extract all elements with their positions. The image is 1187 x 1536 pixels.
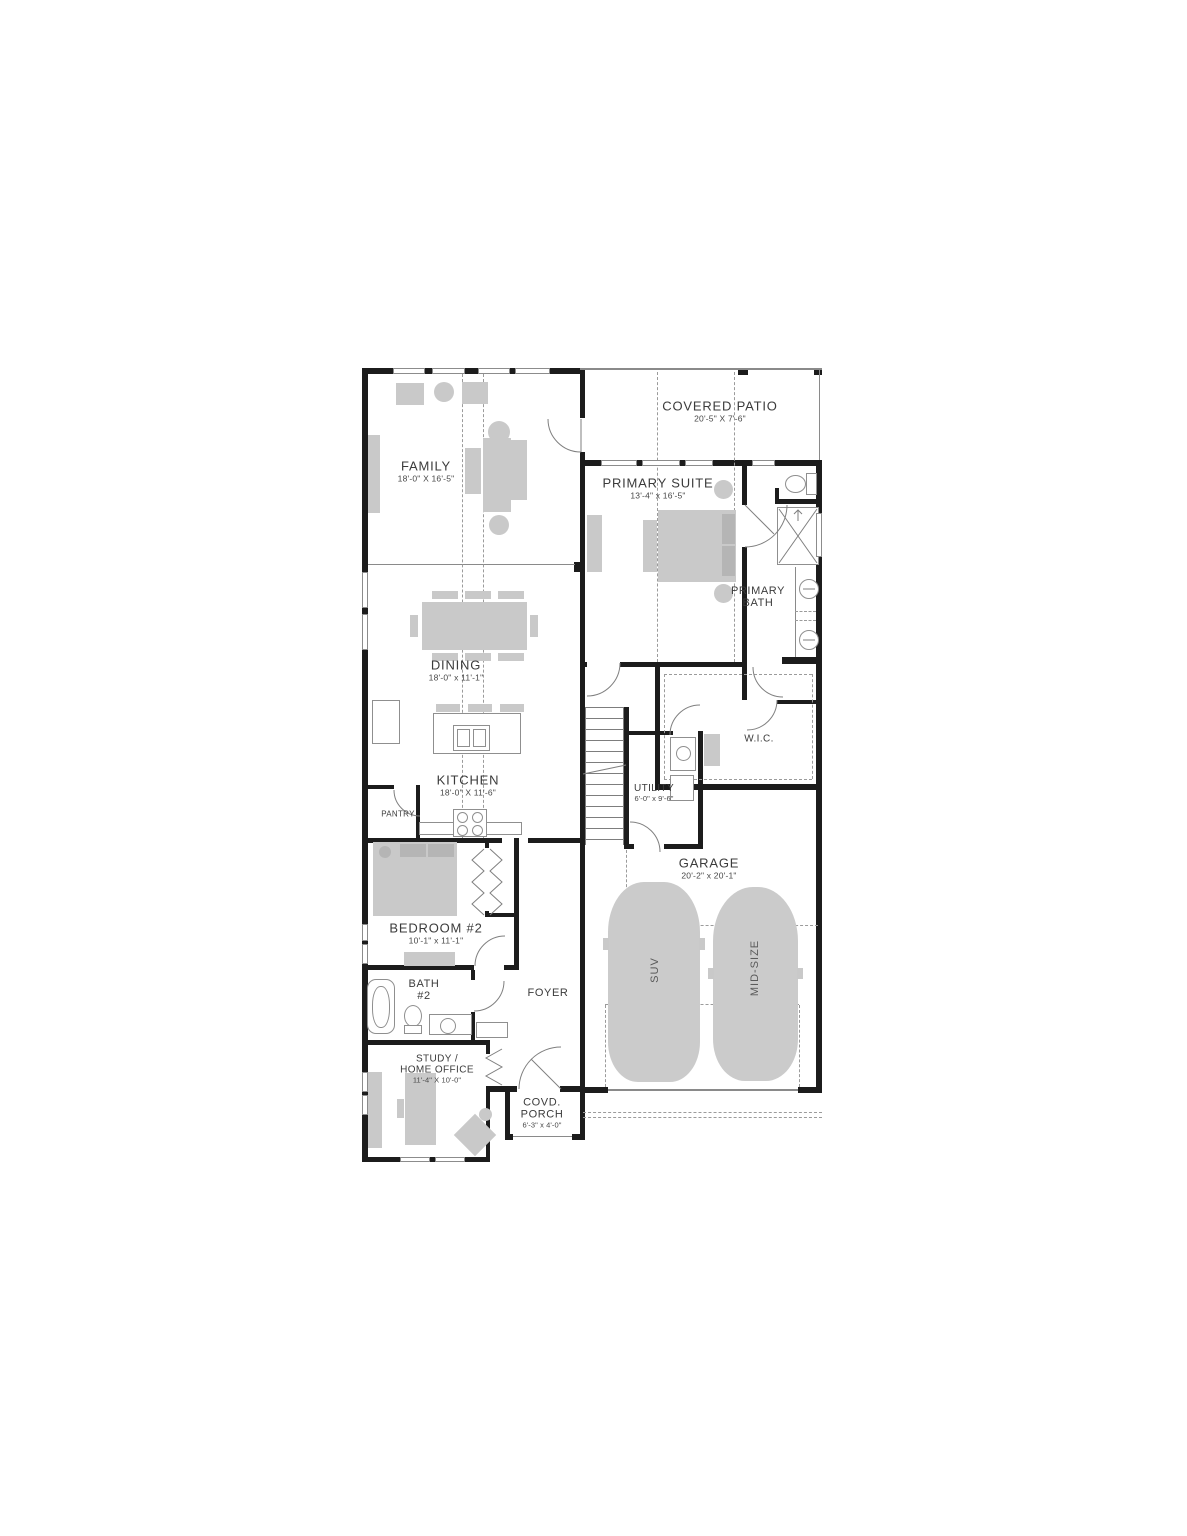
window	[362, 1095, 368, 1115]
line-porch-step	[513, 1136, 572, 1137]
wall-bath-left-a	[742, 460, 747, 505]
family-tv-unit	[368, 435, 380, 513]
bath2-tub-basin	[372, 986, 390, 1028]
window	[362, 614, 368, 650]
kitchen-burner	[472, 825, 483, 836]
window	[752, 460, 775, 466]
room-label-pantry: PANTRY	[381, 811, 415, 820]
room-name-line2: PORCH	[521, 1108, 564, 1120]
dining-chair	[410, 615, 418, 637]
room-label-primary-suite: PRIMARY SUITE 13'-4" x 16'-5"	[602, 477, 713, 502]
room-label-foyer: FOYER	[528, 987, 569, 999]
door-arc-utility	[670, 705, 700, 735]
room-name: GARAGE	[679, 857, 739, 871]
family-armchair-1	[396, 383, 424, 405]
family-sofa	[511, 440, 527, 500]
floor-plan: FAMILY 18'-0" X 16'-5" COVERED PATIO 20'…	[362, 368, 822, 1164]
door-arc-bath2	[474, 981, 504, 1011]
wall-wc-bottom	[775, 499, 820, 504]
suv-mirror	[603, 938, 609, 950]
suite-dresser	[587, 515, 602, 572]
car-name: SUV	[649, 957, 661, 983]
wall-suite-bottom-b	[620, 662, 742, 667]
wall-pantry-top	[362, 785, 394, 789]
bath2-sink	[440, 1018, 456, 1034]
dining-chair	[465, 591, 491, 599]
wall-closet-left-a	[485, 838, 489, 848]
window	[362, 924, 368, 941]
bedroom2-dresser	[404, 952, 455, 966]
closet-bifold-icon	[472, 849, 484, 915]
window	[515, 368, 550, 374]
room-name-line2: HOME OFFICE	[400, 1064, 474, 1075]
room-name-line2: BATH	[731, 597, 785, 609]
wall-bedroom2-right	[514, 838, 519, 970]
room-name: PANTRY	[381, 811, 415, 820]
closet-bifold-icon	[490, 849, 502, 915]
window	[400, 1157, 430, 1162]
door-arc-family-patio	[548, 419, 581, 452]
kitchen-burner	[472, 812, 483, 823]
room-name: BEDROOM #2	[389, 922, 482, 936]
door-arc-bath-hall	[753, 667, 783, 697]
study-knob	[397, 1099, 404, 1118]
door-leaf-front	[531, 1059, 561, 1089]
pbath-sink	[799, 630, 819, 650]
bedroom2-lamp	[379, 846, 391, 858]
room-name: FOYER	[528, 987, 569, 999]
wall-foyer-bottom-b	[560, 1086, 580, 1092]
room-label-covered-patio: COVERED PATIO 20'-5" X 7'-6"	[662, 400, 777, 425]
room-label-bedroom2: BEDROOM #2 10'-1" x 11'-1"	[389, 922, 482, 947]
room-name-line1: STUDY /	[400, 1053, 474, 1064]
room-label-garage: GARAGE 20'-2" x 20'-1"	[679, 857, 739, 882]
room-dims: 13'-4" x 16'-5"	[602, 492, 713, 501]
room-label-bath2: BATH #2	[409, 978, 440, 1002]
window	[816, 513, 822, 557]
wall-garage-bottom-left	[580, 1087, 608, 1093]
pbath-shower	[777, 507, 819, 565]
wall-bath2-right-a	[471, 970, 475, 980]
window	[432, 368, 465, 374]
door-leaf-primary-bath	[745, 505, 774, 534]
family-side-table	[434, 382, 454, 402]
wall-porch-left	[505, 1086, 510, 1140]
window	[642, 460, 680, 466]
line-garage-door	[608, 1089, 798, 1091]
room-label-covd-porch: COVD. PORCH 6'-3" x 4'-0"	[521, 1096, 564, 1129]
family-coffee-table	[489, 515, 509, 535]
door-arc-wic	[747, 700, 777, 730]
room-name-line2: #2	[409, 990, 440, 1002]
kitchen-stool	[436, 704, 460, 712]
room-label-family: FAMILY 18'-0" X 16'-5"	[398, 460, 455, 485]
door-arc-primary-suite	[587, 663, 620, 696]
suite-nightstand	[714, 480, 733, 499]
wall-utility-top	[624, 731, 673, 735]
window	[362, 1072, 368, 1092]
kitchen-burner	[457, 812, 468, 823]
room-name: W.I.C.	[744, 734, 774, 745]
room-dims: 6'-0" x 9'-6"	[634, 795, 674, 803]
kitchen-burner	[457, 825, 468, 836]
room-name: UTILITY	[634, 783, 674, 794]
pbath-sink	[799, 579, 819, 599]
wall-utility-bottom-b	[664, 844, 703, 849]
line-vanity-edge	[795, 567, 796, 657]
bedroom2-pillow	[400, 844, 426, 857]
dash-vanity-2	[795, 620, 816, 621]
wall-wic-top	[777, 700, 822, 704]
wall-porch-right	[580, 1090, 585, 1140]
room-name-line1: BATH	[409, 978, 440, 990]
family-ottoman	[465, 448, 481, 494]
dash-garage-apron-l	[605, 1005, 606, 1087]
dining-chair	[530, 615, 538, 637]
room-label-utility: UTILITY 6'-0" x 9'-6"	[634, 783, 674, 803]
room-name-line1: PRIMARY	[731, 585, 785, 597]
wall-foyer-right	[580, 838, 585, 1093]
dash-wic-shelf-top	[664, 674, 812, 675]
bath2-toilet-bowl	[404, 1005, 422, 1027]
dash-vanity-1	[795, 611, 816, 612]
room-name: FAMILY	[398, 460, 455, 474]
wall-study-bottom-a	[362, 1157, 400, 1162]
room-label-dining: DINING 18'-0" x 11'-1"	[429, 659, 484, 684]
wall-study-right-b	[486, 1086, 490, 1162]
door-arc-front	[519, 1047, 561, 1089]
room-name-line1: COVD.	[521, 1096, 564, 1108]
wall-porch-post-right	[572, 1134, 580, 1140]
study-side-table	[479, 1108, 492, 1121]
suite-pillow	[722, 514, 735, 544]
room-dims: 20'-2" x 20'-1"	[679, 872, 739, 881]
kitchen-sink-basin	[457, 729, 470, 747]
foyer-bench	[476, 1022, 508, 1038]
window	[362, 944, 368, 964]
wall-utility-bottom-a	[624, 844, 634, 849]
wall-study-right-a	[486, 1040, 490, 1054]
wall-bath-left-b	[742, 547, 747, 700]
wall-dining-post	[574, 562, 581, 572]
room-dims: 18'-0" X 11'-6"	[437, 789, 500, 798]
wic-dresser	[704, 734, 720, 766]
wall-garage-bottom-right	[798, 1087, 822, 1093]
room-name: COVERED PATIO	[662, 400, 777, 414]
dash-wic-shelf-right	[812, 674, 813, 779]
wall-kitchen-bottom-b	[528, 838, 585, 843]
window	[478, 368, 510, 374]
family-armchair-2	[462, 382, 488, 404]
line-patio-top	[580, 368, 822, 370]
room-dims: 20'-5" X 7'-6"	[662, 415, 777, 424]
wall-study-bottom-c	[465, 1157, 490, 1162]
pbath-toilet-bowl	[785, 475, 806, 493]
room-label-study: STUDY / HOME OFFICE 11'-4" X 10'-0"	[400, 1053, 474, 1084]
kitchen-sink-basin	[473, 729, 486, 747]
window	[435, 1157, 465, 1162]
wall-family-right-a	[580, 374, 585, 418]
dining-chair	[498, 653, 524, 661]
room-dims: 11'-4" X 10'-0"	[400, 1076, 474, 1084]
room-dims: 10'-1" x 11'-1"	[389, 937, 482, 946]
kitchen-stool	[500, 704, 524, 712]
bedroom2-pillow	[428, 844, 454, 857]
wall-porch-post-left	[505, 1134, 513, 1140]
car-label-suv: SUV	[649, 957, 661, 983]
car-name: MID-SIZE	[749, 940, 761, 996]
wall-suite-bottom-a	[580, 662, 587, 667]
window	[685, 460, 713, 466]
room-label-wic: W.I.C.	[744, 734, 774, 745]
room-name: KITCHEN	[437, 774, 500, 788]
room-name: DINING	[429, 659, 484, 673]
suite-bench	[643, 520, 657, 572]
room-dims: 18'-0" X 16'-5"	[398, 475, 455, 484]
wall-wc-stub	[775, 488, 779, 504]
dining-chair	[432, 591, 458, 599]
suite-pillow	[722, 546, 735, 576]
room-label-kitchen: KITCHEN 18'-0" X 11'-6"	[437, 774, 500, 799]
room-dims: 6'-3" x 4'-0"	[521, 1121, 564, 1129]
dash-garage-apron-r	[799, 1005, 800, 1087]
room-name: PRIMARY SUITE	[602, 477, 713, 491]
car-label-midsize: MID-SIZE	[749, 940, 761, 996]
kitchen-fridge	[372, 700, 400, 744]
bath2-toilet-tank	[404, 1025, 422, 1034]
wall-bedroom2-bottom-b	[504, 965, 519, 970]
family-rug	[483, 438, 511, 512]
room-label-primary-bath: PRIMARY BATH	[731, 585, 785, 609]
study-desk	[368, 1072, 382, 1148]
dining-table	[422, 602, 527, 650]
utility-washer-drum	[676, 746, 691, 761]
pbath-toilet-tank	[806, 473, 817, 495]
kitchen-stool	[468, 704, 492, 712]
dash-driveway-2	[583, 1117, 822, 1118]
dining-chair	[498, 591, 524, 599]
window	[601, 460, 637, 466]
wall-stairs-right	[624, 707, 629, 848]
dash-wic-shelf-left	[664, 674, 665, 779]
door-arc-utility-garage	[630, 822, 660, 852]
room-dims: 18'-0" x 11'-1"	[429, 674, 484, 683]
line-family-dining	[368, 564, 575, 565]
wall-bath-bottom	[782, 657, 822, 664]
wall-family-right-b	[580, 452, 585, 460]
window	[393, 368, 425, 374]
staircase	[585, 707, 624, 845]
line-patio-right	[819, 370, 820, 460]
midsize-mirror	[797, 968, 803, 979]
dash-driveway-1	[583, 1112, 822, 1113]
window	[362, 572, 368, 608]
wall-foyer-bottom-a	[505, 1086, 517, 1092]
midsize-mirror	[708, 968, 714, 979]
suv-mirror	[699, 938, 705, 950]
floor-plan-page: FAMILY 18'-0" X 16'-5" COVERED PATIO 20'…	[0, 0, 1187, 1536]
study-door-icon	[486, 1049, 502, 1085]
wall-wic-left	[655, 662, 660, 788]
wall-bath2-bottom	[362, 1040, 490, 1045]
